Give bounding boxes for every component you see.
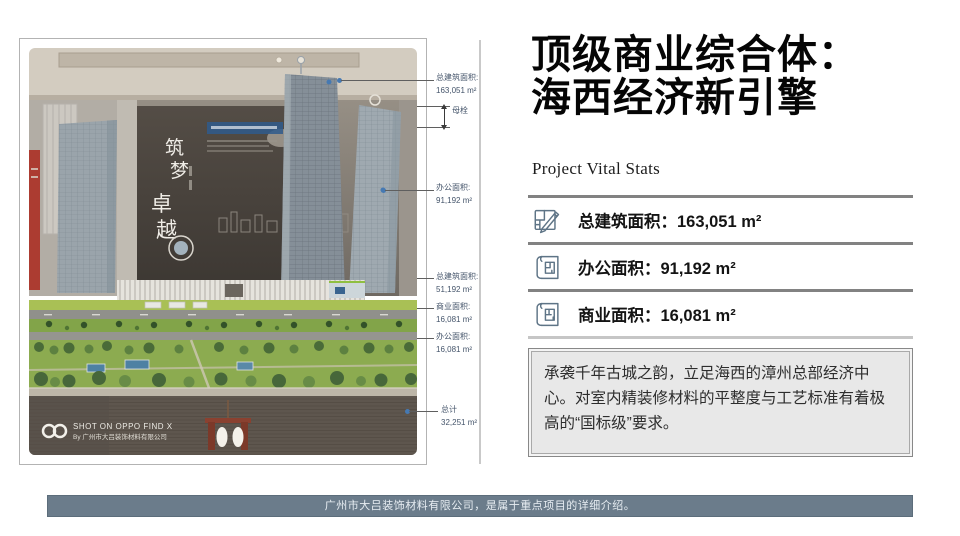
calligraphy-char: 梦 [170,160,189,182]
blueprint-pencil-icon [533,206,562,235]
annotation-leader-line [409,411,438,412]
annotation-label: 总建筑面积: [436,71,488,84]
arrow-down-icon [441,125,447,130]
title-line1: 顶级商业综合体： [531,33,859,76]
slide-subtitle: Project Vital Stats [532,159,660,179]
annotation-leader-line [417,278,434,279]
stats-bottom-rule [528,336,913,339]
stat-row-office-area: 办公面积：91,192 m² [528,242,913,289]
stat-value: 91,192 m² [661,260,736,278]
podium-strip [117,280,365,300]
stat-row-total-area: 总建筑面积：163,051 m² [528,195,913,242]
stat-label: 商业面积： [578,307,661,325]
floorplan-scroll-icon [533,253,562,282]
left-tower [57,120,117,293]
description-box: 承袭千年古城之韵，立足海西的漳州总部经济中心。对室内精装修材料的平整度与工艺标准… [528,348,913,457]
photo-annotation-gfa: 总建筑面积: 51,192 m² [436,270,488,296]
measure-arrow-label: 母栓 [452,104,482,117]
annotation-label: 办公面积: [436,181,488,194]
tower-spire [298,57,305,64]
annotation-value: 163,051 m² [436,84,488,97]
stat-value: 16,081 m² [661,307,736,325]
annotation-leader-line [417,308,434,309]
annotation-label: 办公面积: [436,330,488,343]
stat-row-commercial-area: 商业面积：16,081 m² [528,289,913,336]
calligraphy-char: 筑 [165,137,184,159]
stat-label: 办公面积： [578,260,661,278]
stat-text: 办公面积：91,192 m² [578,255,736,279]
floorplan-scroll-icon [533,300,562,329]
stat-text: 商业面积：16,081 m² [578,302,736,326]
photo-annotation-office-area: 办公面积: 91,192 m² [436,181,488,207]
red-banner [29,150,40,290]
model-greenery [29,300,417,396]
photo-annotation-total: 总计 32,251 m² [441,403,493,429]
annotation-value: 91,192 m² [436,194,488,207]
description-box-inner: 承袭千年古城之韵，立足海西的漳州总部经济中心。对室内精装修材料的平整度与工艺标准… [531,351,910,454]
calligraphy-char: 卓 [151,192,172,216]
footer-bar: 广州市大吕装饰材料有限公司，是属于重点项目的详细介绍。 [47,495,913,517]
measure-arrow-line [444,108,445,126]
annotation-leader-line [417,338,434,339]
photo-card: 筑 梦 卓 越 [19,38,427,465]
annotation-label: 总建筑面积: [436,270,488,283]
watermark-line2: By 广州市大吕装饰材料有限公司 [73,432,167,441]
annotation-label: 总计 [441,403,493,416]
presentation-slide: 筑 梦 卓 越 [0,0,960,536]
annotation-value: 32,251 m² [441,416,493,429]
stat-text: 总建筑面积：163,051 m² [578,208,761,232]
photo-ceiling [29,48,417,101]
blue-court [125,360,149,369]
description-text: 承袭千年古城之韵，立足海西的漳州总部经济中心。对室内精装修材料的平整度与工艺标准… [544,361,897,436]
annotation-value: 16,081 m² [436,343,488,356]
footer-text: 广州市大吕装饰材料有限公司，是属于重点项目的详细介绍。 [325,500,636,512]
annotation-leader-line [385,190,434,191]
stats-table: 总建筑面积：163,051 m² 办公面积：91,192 m² [528,195,913,339]
blue-court [87,364,105,372]
annotation-leader-line [341,80,434,81]
right-wall [399,100,417,296]
annotation-value: 51,192 m² [436,283,488,296]
slide-title: 顶级商业综合体： 海西经济新引擎 [531,33,859,119]
stat-value: 163,051 m² [677,213,761,231]
watermark-line1: SHOT ON OPPO FIND X [73,422,173,431]
annotation-value: 16,081 m² [436,313,488,326]
title-line2: 海西经济新引擎 [531,76,859,119]
photo-scene: 筑 梦 卓 越 [29,48,417,455]
stat-label: 总建筑面积： [578,213,677,231]
center-tower [281,57,345,294]
arrow-up-icon [441,104,447,109]
blue-court [237,362,253,370]
photo-annotation-commercial-area: 商业面积: 16,081 m² [436,300,488,326]
photo-annotation-total-area: 总建筑面积: 163,051 m² [436,71,488,97]
photo-annotation-office-area-2: 办公面积: 16,081 m² [436,330,488,356]
building-model-photo: 筑 梦 卓 越 [29,48,417,455]
annotation-label: 商业面积: [436,300,488,313]
